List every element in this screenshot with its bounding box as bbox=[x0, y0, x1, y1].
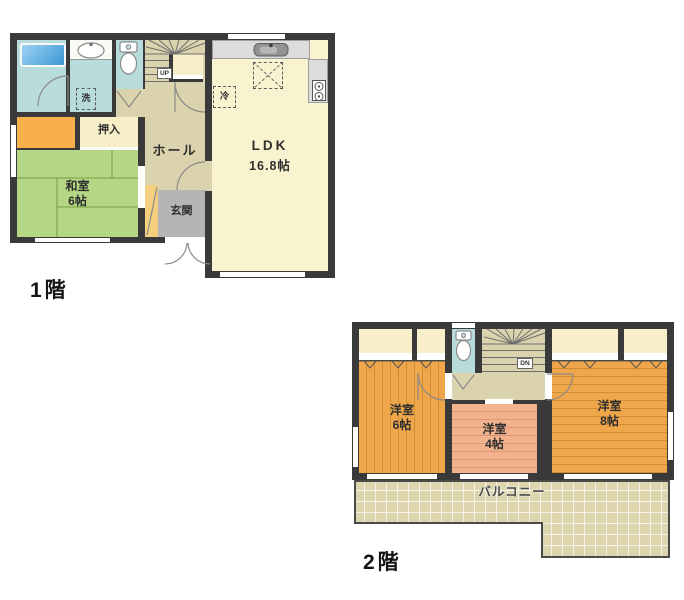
floor2-caption: 2階 bbox=[363, 546, 402, 576]
toilet-icon bbox=[120, 42, 137, 74]
folding-door-marks bbox=[359, 361, 667, 368]
kitchen-sink-icon bbox=[254, 44, 288, 57]
toilet-icon-2f bbox=[456, 331, 471, 361]
tatami-lines bbox=[17, 150, 138, 237]
floor1-plan: 洗 UP 押入 和室 6帖 玄関 ホール 冷 LDK 16.8帖 bbox=[10, 33, 335, 278]
floor2-plan: バルコニー DN 洋室 6帖 洋室 4帖 洋室 8帖 bbox=[352, 322, 674, 562]
shoe-cabinet-divider bbox=[147, 187, 157, 235]
stove-burners-icon bbox=[315, 83, 323, 101]
floorplan-page: 洗 UP 押入 和室 6帖 玄関 ホール 冷 LDK 16.8帖 bbox=[0, 0, 684, 600]
stairs-fan-icon bbox=[145, 40, 205, 54]
stairs-fan-icon-2f bbox=[482, 329, 545, 344]
washbasin-icon bbox=[78, 43, 104, 58]
floor2-symbols bbox=[352, 322, 674, 562]
door-arc-icons bbox=[38, 76, 210, 264]
floor1-caption: 1階 bbox=[30, 274, 69, 304]
door-arc-icons-2f bbox=[418, 373, 573, 400]
table-cross-mark bbox=[253, 62, 283, 89]
floor1-symbols bbox=[10, 33, 335, 278]
